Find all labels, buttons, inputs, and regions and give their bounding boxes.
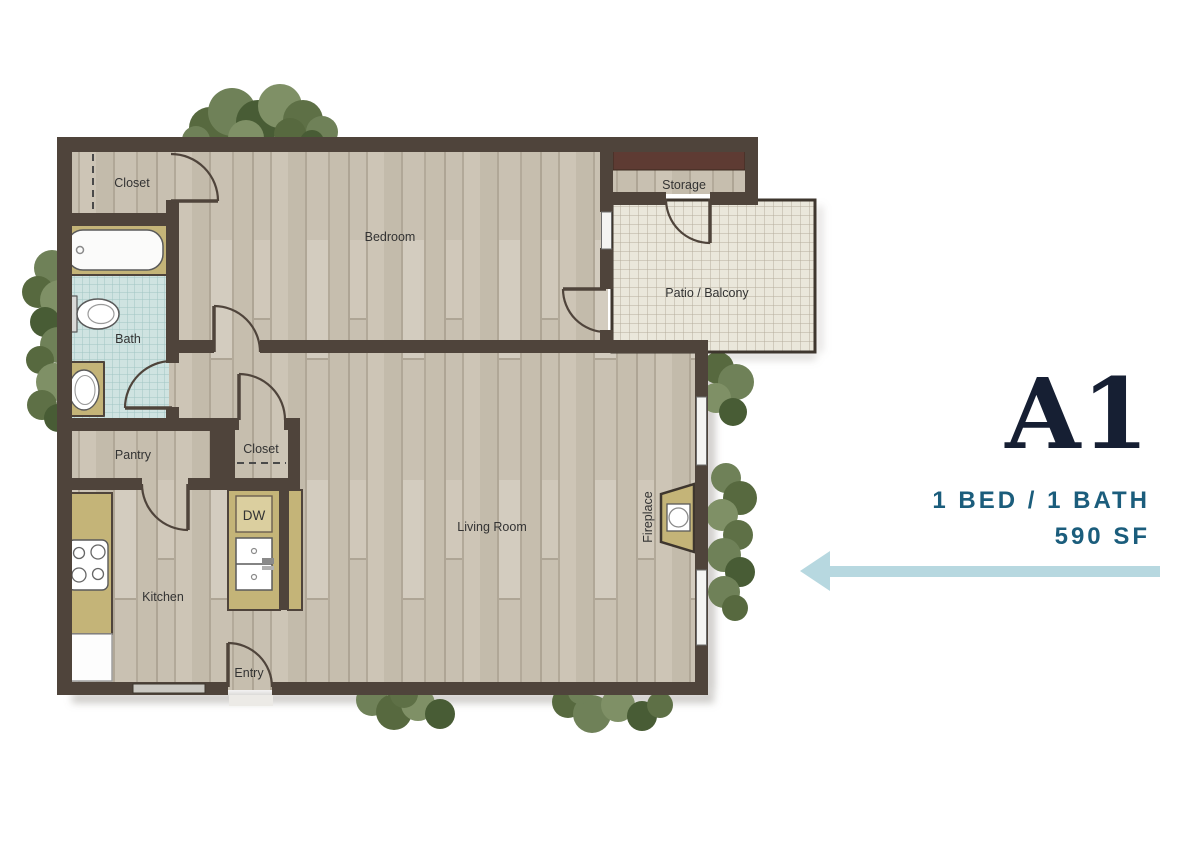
kitchen-counter-return [288,490,302,610]
label-storage: Storage [662,178,706,192]
wall-segment [710,192,758,205]
wall-segment [610,192,666,205]
window [133,684,205,693]
label-pantry: Pantry [115,448,152,462]
wall-segment [260,340,708,353]
left-arrow-icon [800,551,1160,591]
label-kitchen: Kitchen [142,590,184,604]
kitchen-sink [236,538,274,590]
bathtub [62,225,168,275]
window [697,397,707,465]
storage-shelf [613,150,745,170]
label-living-room: Living Room [457,520,526,534]
stove [68,540,108,590]
wall-segment [188,478,223,490]
window [697,570,707,645]
wall-segment [57,478,142,490]
label-patio: Patio / Balcony [665,286,749,300]
toilet [64,296,119,332]
patio-floor [612,200,815,352]
label-dishwasher: DW [243,508,266,523]
label-bath: Bath [115,332,141,346]
fireplace [661,484,694,552]
label-bedroom-closet: Closet [114,176,150,190]
wall-segment [272,682,708,695]
wall-segment [166,340,214,353]
label-bedroom: Bedroom [365,230,416,244]
left-arrow-bar [826,566,1160,577]
wall-segment [57,213,179,226]
floor-plan-page: Closet Bedroom Storage Patio / Balcony B… [0,0,1200,848]
entry-walkway [229,695,273,706]
label-living-closet: Closet [243,442,279,456]
wall-segment [222,478,300,490]
unit-area: 590 SF [1055,523,1150,551]
window [602,212,612,249]
wall-segment [57,418,223,431]
unit-bed-bath: 1 BED / 1 BATH [932,487,1150,515]
label-entry: Entry [234,666,264,680]
wall-segment [600,248,613,289]
label-fireplace: Fireplace [641,491,655,542]
unit-name: A1 [1005,366,1150,463]
wall-segment [57,137,758,152]
counter-divider-wall [280,490,288,610]
